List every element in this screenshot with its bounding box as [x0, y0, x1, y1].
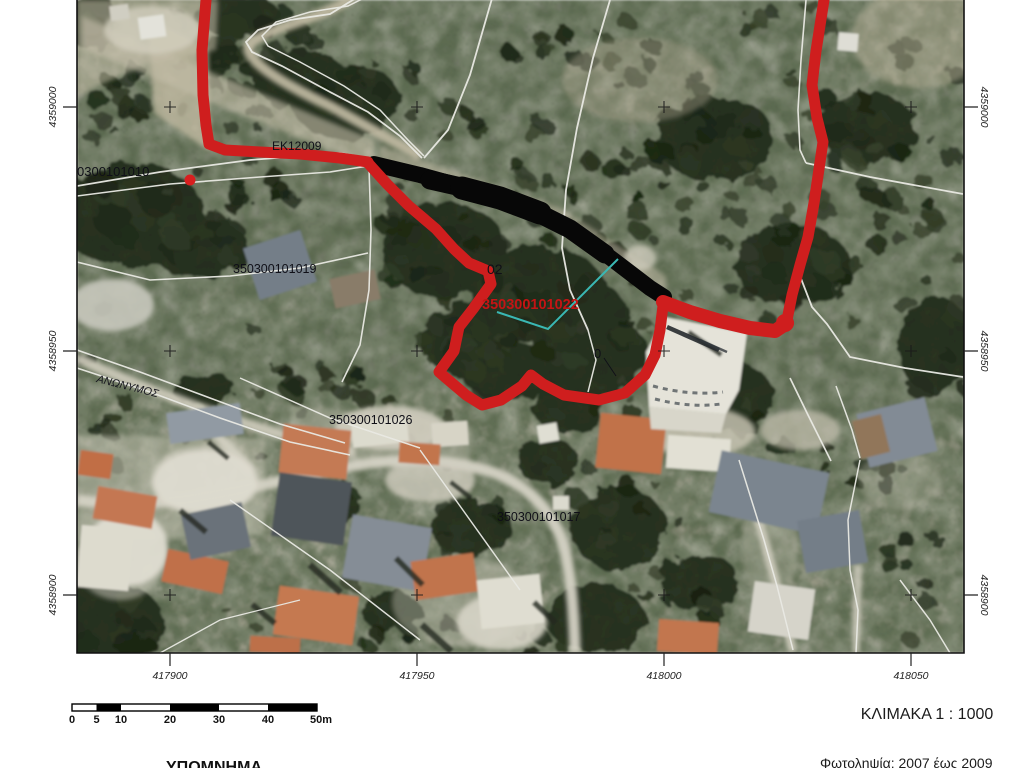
svg-text:350300101026: 350300101026 [329, 413, 412, 427]
svg-text:ΚΛΙΜΑΚΑ 1 : 1000: ΚΛΙΜΑΚΑ 1 : 1000 [861, 706, 994, 723]
svg-text:4359000: 4359000 [47, 86, 59, 127]
svg-text:4358900: 4358900 [47, 574, 59, 615]
svg-text:0: 0 [594, 346, 601, 361]
svg-text:50m: 50m [310, 714, 332, 726]
svg-text:02: 02 [487, 261, 503, 277]
svg-text:20: 20 [164, 714, 176, 726]
svg-text:EK12009: EK12009 [272, 139, 322, 153]
svg-text:4358950: 4358950 [47, 330, 59, 371]
svg-text:0300101010: 0300101010 [77, 164, 149, 179]
svg-text:Φωτοληψία: 2007 έως 2009: Φωτοληψία: 2007 έως 2009 [820, 755, 993, 768]
svg-text:4359000: 4359000 [978, 87, 990, 128]
svg-text:350300101017: 350300101017 [497, 510, 580, 524]
svg-text:418000: 418000 [646, 670, 681, 682]
svg-text:418050: 418050 [893, 670, 928, 682]
svg-text:30: 30 [213, 714, 225, 726]
svg-text:350300101022: 350300101022 [482, 297, 579, 313]
svg-text:40: 40 [262, 714, 274, 726]
svg-text:5: 5 [93, 714, 99, 726]
svg-text:350300101019: 350300101019 [233, 262, 316, 276]
svg-text:4358900: 4358900 [978, 575, 990, 616]
svg-text:417950: 417950 [399, 670, 434, 682]
svg-text:4358950: 4358950 [978, 331, 990, 372]
svg-text:10: 10 [115, 714, 127, 726]
svg-text:417900: 417900 [152, 670, 187, 682]
svg-text:0: 0 [69, 714, 75, 726]
svg-text:ΥΠΟΜΝΗΜΑ: ΥΠΟΜΝΗΜΑ [166, 759, 262, 768]
